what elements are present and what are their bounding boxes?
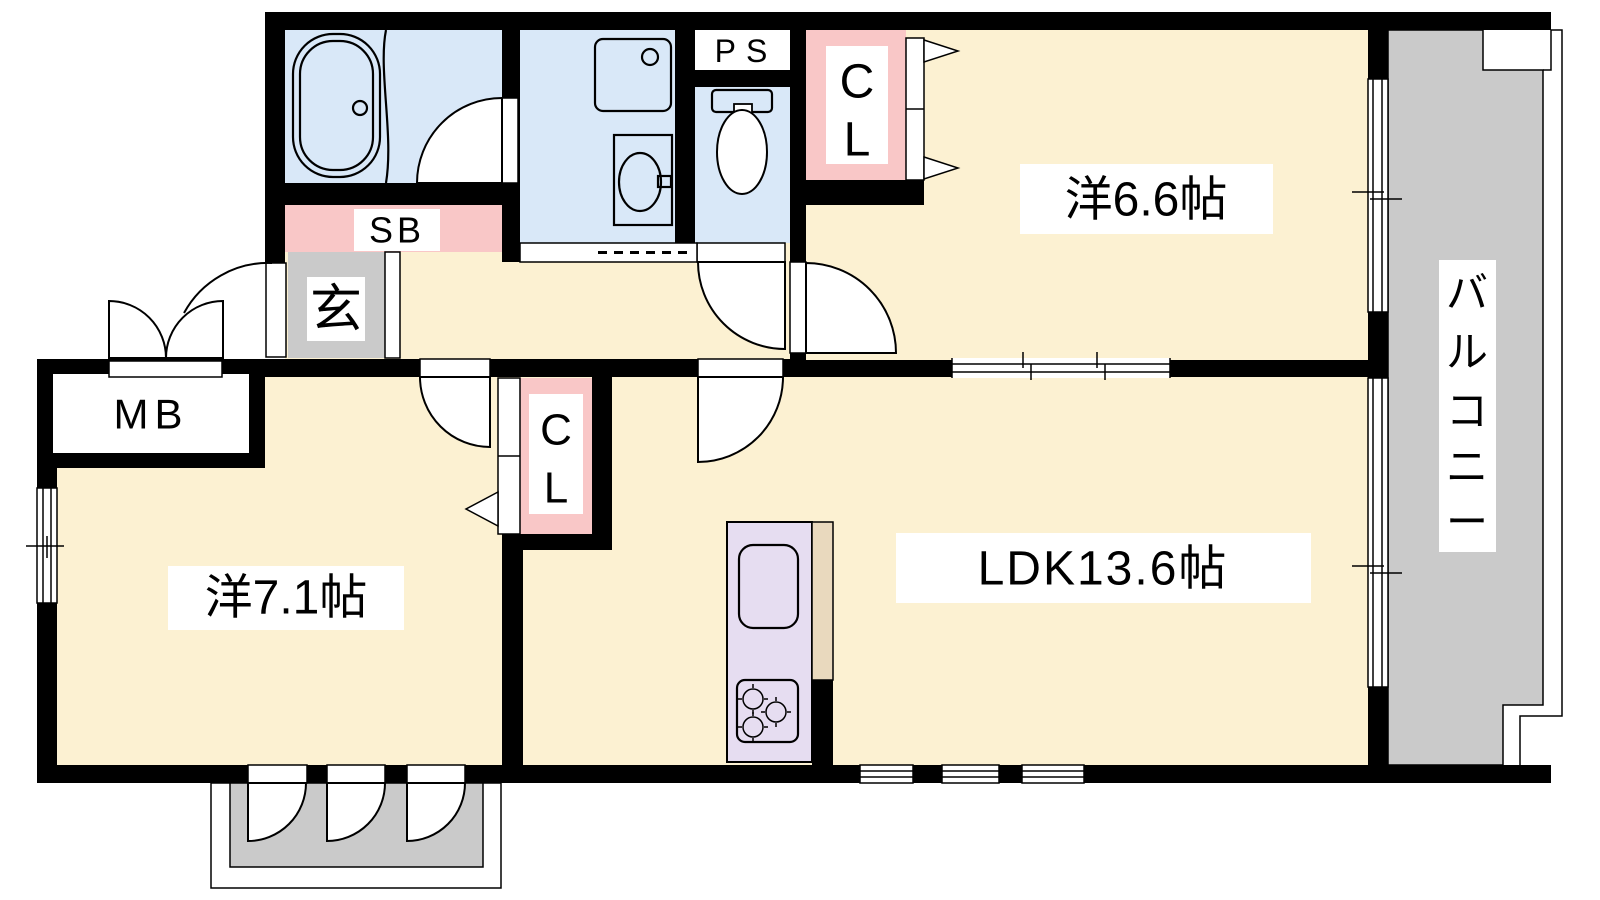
washroom-floor <box>520 30 675 243</box>
closet-71-label-c: C <box>540 406 572 455</box>
wall-door-corner <box>790 353 806 377</box>
bedroom-71-label: 洋7.1帖 <box>205 572 368 625</box>
wall-balcony-stub2 <box>1368 312 1388 378</box>
floorplan-page: 洋6.6帖 洋7.1帖 LDK13.6帖 玄 SB MB PS C L C L … <box>0 0 1600 900</box>
balcony-label-char3: コ <box>1446 388 1488 435</box>
door-leaf-66 <box>790 262 806 353</box>
closet-66-label-l: L <box>844 114 871 167</box>
wall-closet66-south <box>806 180 924 205</box>
meter-box-door-right <box>166 301 223 358</box>
wall-west-seg2 <box>37 603 57 765</box>
meter-box-label: MB <box>114 391 189 438</box>
bath-door-leaf <box>502 98 518 183</box>
bay-opening-2 <box>327 765 385 783</box>
floorplan-drawing: 洋6.6帖 洋7.1帖 LDK13.6帖 玄 SB MB PS C L C L … <box>0 0 1600 900</box>
door-opening-71 <box>420 359 490 377</box>
entrance-door-swing <box>184 263 272 313</box>
wall-bath-south <box>285 183 502 205</box>
wall-kitchen-stub <box>812 680 833 765</box>
ldk-label: LDK13.6帖 <box>978 543 1229 596</box>
window-66-ldk <box>952 358 1170 378</box>
balcony-label-char5: ー <box>1446 499 1488 546</box>
shoe-box-label: SB <box>369 210 425 251</box>
meter-box-opening <box>109 361 222 377</box>
wall-west-upper <box>265 12 285 263</box>
entrance-door-leaf <box>266 263 286 357</box>
toilet-bowl-icon <box>717 110 767 194</box>
bay-opening-3 <box>407 765 465 783</box>
balcony-label-char1: バ <box>1446 270 1488 317</box>
pipe-space-label: PS <box>715 33 778 69</box>
balcony-railing-step <box>1543 30 1551 70</box>
wall-hall-ldk <box>490 359 698 377</box>
bay-casements <box>248 765 465 841</box>
slit-window-2 <box>942 765 999 783</box>
balcony-label-char4: ニ <box>1446 444 1488 491</box>
wall-71-ldk <box>502 550 523 765</box>
wall-wash-toilet <box>675 12 695 243</box>
door-opening-ldk <box>698 359 783 377</box>
wall-66-south-east <box>1170 360 1368 377</box>
wall-closet71-south <box>502 534 612 550</box>
kitchen-counter-edge <box>812 522 833 680</box>
door-opening-toilet <box>697 243 785 262</box>
closet-71-label-l: L <box>544 464 568 513</box>
closet-66-label-c: C <box>840 56 875 109</box>
entrance-label: 玄 <box>310 281 362 339</box>
wall-top <box>265 12 1551 30</box>
balcony-label-char2: ル <box>1446 329 1488 376</box>
wall-66-south-west <box>806 360 952 377</box>
meter-box-door-left <box>109 301 166 358</box>
window-66-balcony <box>1368 79 1388 312</box>
slit-window-3 <box>1022 765 1084 783</box>
wall-ps-bottom <box>695 70 790 87</box>
slit-window-1 <box>860 765 913 783</box>
wall-closet71-east <box>592 377 612 550</box>
entrance-step-frame <box>385 252 400 358</box>
window-ldk-balcony <box>1368 378 1388 687</box>
wall-toilet-east <box>790 12 806 262</box>
wall-balcony-stub1 <box>1368 29 1388 79</box>
wall-balcony-stub3 <box>1368 687 1388 765</box>
bedroom-66-label: 洋6.6帖 <box>1065 174 1228 227</box>
bay-opening-1 <box>248 765 307 783</box>
